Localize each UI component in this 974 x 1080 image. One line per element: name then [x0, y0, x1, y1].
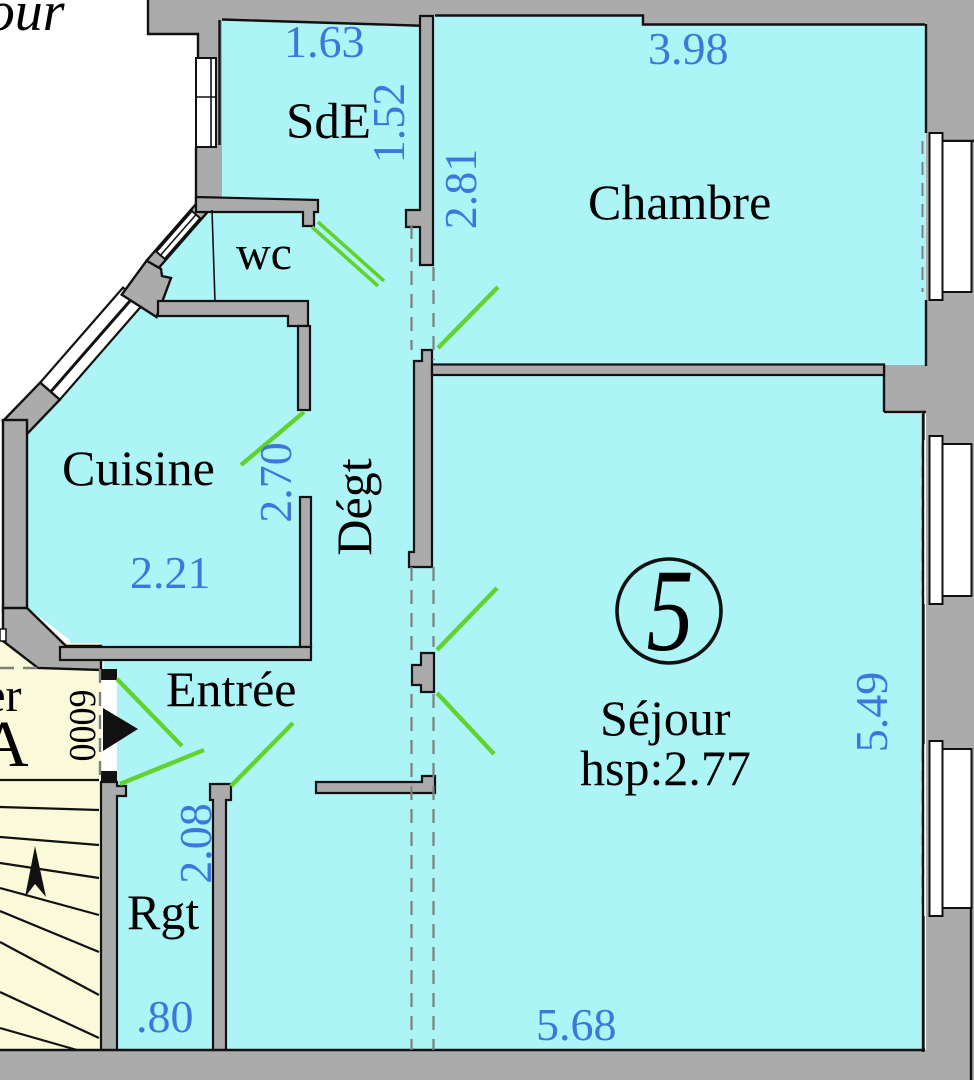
svg-text:Entrée: Entrée	[166, 661, 296, 717]
svg-text:Séjour: Séjour	[0, 0, 65, 43]
svg-text:2.70: 2.70	[250, 442, 301, 523]
svg-text:wc: wc	[236, 227, 292, 280]
svg-text:A: A	[0, 708, 29, 781]
svg-text:SdE: SdE	[286, 94, 371, 150]
svg-text:5: 5	[647, 545, 694, 676]
svg-text:5.49: 5.49	[846, 672, 897, 753]
svg-text:Séjour: Séjour	[600, 690, 731, 746]
svg-text:1.52: 1.52	[363, 83, 414, 164]
svg-text:2.81: 2.81	[435, 149, 486, 230]
svg-text:Chambre: Chambre	[588, 174, 771, 230]
svg-text:2.21: 2.21	[130, 547, 211, 598]
svg-text:Dégt: Dégt	[326, 458, 382, 555]
svg-text:hsp:2.77: hsp:2.77	[580, 740, 751, 796]
svg-text:Rgt: Rgt	[127, 884, 199, 940]
svg-text:5.68: 5.68	[536, 999, 617, 1050]
svg-text:3.98: 3.98	[648, 23, 729, 74]
svg-text:0009: 0009	[62, 690, 104, 762]
svg-text:1.63: 1.63	[284, 16, 365, 67]
svg-text:2.08: 2.08	[170, 803, 221, 884]
svg-text:.80: .80	[136, 991, 194, 1042]
svg-text:Cuisine: Cuisine	[62, 440, 215, 496]
